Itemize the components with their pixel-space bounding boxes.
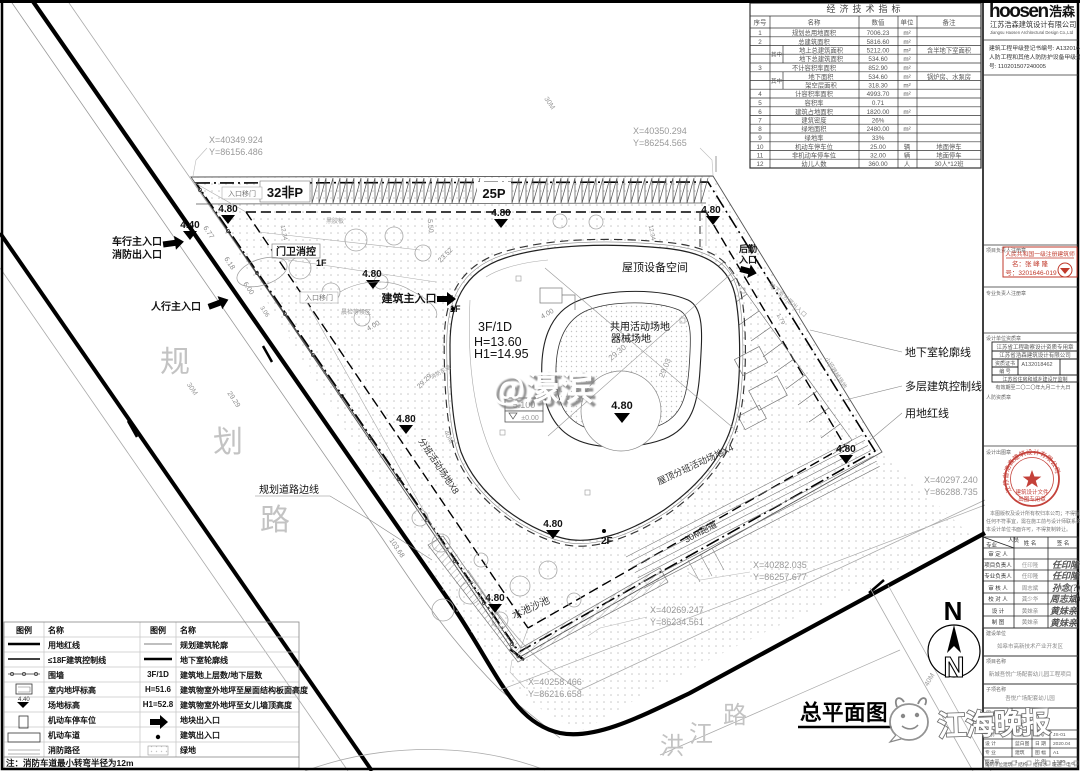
svg-text:含半地下室面积: 含半地下室面积 (927, 46, 972, 55)
svg-text:地面停车: 地面停车 (936, 151, 961, 160)
svg-text:入口: 入口 (738, 255, 757, 265)
svg-text:X=40349.924: X=40349.924 (209, 135, 263, 145)
svg-text:2480.00: 2480.00 (867, 126, 890, 133)
svg-text:318.30: 318.30 (868, 83, 888, 90)
svg-text:规: 规 (160, 346, 190, 379)
svg-text:1F: 1F (316, 258, 327, 268)
svg-text:计容积率面积: 计容积率面积 (795, 89, 833, 98)
svg-text:534.60: 534.60 (868, 74, 888, 81)
svg-text:如皋市高新技术产业开发区: 如皋市高新技术产业开发区 (997, 642, 1064, 650)
svg-text:4.80: 4.80 (543, 519, 563, 530)
svg-text:号：3201646-019: 号：3201646-019 (1005, 269, 1057, 277)
svg-text:11: 11 (757, 153, 764, 160)
svg-text:Y=86254.565: Y=86254.565 (633, 138, 687, 148)
svg-text:32.00: 32.00 (870, 153, 886, 160)
svg-text:10: 10 (756, 144, 764, 151)
svg-text:任印隆: 任印隆 (1022, 561, 1039, 569)
svg-text:地下面积: 地下面积 (808, 72, 834, 81)
svg-text:黄妹亲: 黄妹亲 (1050, 618, 1078, 628)
svg-text:地上总建筑面积: 地上总建筑面积 (799, 46, 844, 55)
svg-text:±0.00: ±0.00 (521, 415, 539, 422)
svg-text:4.80: 4.80 (485, 593, 505, 604)
svg-text:≤18F建筑控制线: ≤18F建筑控制线 (48, 655, 106, 665)
svg-text:建筑密度: 建筑密度 (801, 116, 827, 125)
svg-text:32非P: 32非P (267, 185, 303, 200)
svg-text:4.80: 4.80 (362, 269, 382, 280)
svg-text:建筑设计文件: 建筑设计文件 (1015, 488, 1049, 496)
svg-text:人: 人 (904, 160, 911, 168)
svg-text:出图专用章: 出图专用章 (1018, 495, 1046, 503)
svg-text:建筑出入口: 建筑出入口 (179, 730, 220, 740)
svg-text:用地红线: 用地红线 (47, 640, 80, 650)
svg-text:电气: 电气 (1066, 761, 1076, 768)
svg-text:N: N (944, 652, 965, 684)
svg-text:设计出图章: 设计出图章 (986, 449, 1011, 456)
svg-text:设 计: 设 计 (992, 607, 1005, 615)
svg-text:2F: 2F (601, 536, 613, 547)
svg-text:人行主入口: 人行主入口 (151, 300, 201, 313)
svg-text:江苏省工程勘察设计资质专用章: 江苏省工程勘察设计资质专用章 (996, 343, 1074, 351)
svg-text:H=51.6: H=51.6 (145, 685, 172, 694)
svg-text:总建筑面积: 总建筑面积 (798, 37, 830, 46)
svg-text:建筑主入口: 建筑主入口 (382, 291, 437, 305)
svg-text:4.40: 4.40 (180, 220, 200, 231)
svg-text:3F/1D: 3F/1D (147, 670, 169, 679)
svg-text:周志斌: 周志斌 (1022, 584, 1039, 592)
svg-text:4.80: 4.80 (836, 444, 856, 455)
svg-text:号: 110201507240005: 号: 110201507240005 (989, 63, 1046, 70)
svg-text:X=40258.466: X=40258.466 (528, 677, 582, 687)
svg-text:晨检等候区: 晨检等候区 (341, 308, 371, 316)
svg-text:用地红线: 用地红线 (905, 406, 949, 420)
svg-text:地块出入口: 地块出入口 (180, 715, 220, 725)
svg-text:4.80: 4.80 (611, 400, 632, 412)
svg-text:经济技术指标: 经济技术指标 (826, 3, 904, 14)
svg-text:多层建筑控制线: 多层建筑控制线 (905, 379, 982, 393)
svg-text:Jiangsu Haosen Architectural D: Jiangsu Haosen Architectural Design Co.,… (990, 30, 1074, 35)
svg-text:场地标高: 场地标高 (48, 700, 80, 710)
svg-text:9: 9 (758, 135, 762, 142)
svg-text:建设单位: 建设单位 (986, 630, 1006, 637)
svg-text:资质证书: 资质证书 (995, 360, 1015, 367)
svg-text:7006.23: 7006.23 (867, 30, 890, 37)
svg-text:任印隆: 任印隆 (1052, 560, 1080, 570)
svg-text:m²: m² (903, 83, 910, 90)
svg-text:人民共和国一级注册建筑师: 人民共和国一级注册建筑师 (1005, 250, 1075, 258)
svg-text:车行主入口: 车行主入口 (112, 235, 162, 248)
svg-text:规划建筑轮廓: 规划建筑轮廓 (180, 640, 228, 650)
svg-text:子项名称: 子项名称 (986, 686, 1006, 693)
svg-text:序号: 序号 (754, 18, 768, 27)
svg-text:给排水: 给排水 (1033, 761, 1048, 768)
svg-text:日 期: 日 期 (1035, 741, 1046, 747)
svg-text:其中: 其中 (771, 51, 782, 59)
svg-text:25P: 25P (482, 186, 505, 201)
svg-text:4: 4 (758, 91, 762, 98)
svg-text:结构: 结构 (1018, 761, 1028, 768)
svg-text:m²: m² (903, 109, 910, 116)
svg-text:校 对 人: 校 对 人 (988, 595, 1008, 603)
svg-text:建筑: 建筑 (1015, 749, 1025, 756)
svg-text:专业负责人: 专业负责人 (984, 572, 1012, 580)
svg-text:不计容积率面积: 不计容积率面积 (792, 63, 837, 72)
svg-text:数值: 数值 (872, 18, 886, 27)
svg-text:A132018462: A132018462 (1021, 362, 1052, 368)
svg-text:姓 名: 姓 名 (1024, 539, 1037, 547)
svg-text:H1=14.95: H1=14.95 (474, 347, 529, 361)
svg-text:绿地面积: 绿地面积 (801, 124, 827, 133)
svg-text:江苏浩森建筑设计有限公司: 江苏浩森建筑设计有限公司 (990, 20, 1076, 29)
svg-text:项目名称: 项目名称 (986, 658, 1006, 665)
svg-text:4.80: 4.80 (491, 208, 511, 219)
svg-text:幼儿人数: 幼儿人数 (801, 159, 827, 168)
svg-text:JS-01: JS-01 (1053, 732, 1066, 738)
svg-text:X=40269.247: X=40269.247 (650, 605, 704, 615)
svg-text:入口移门: 入口移门 (228, 189, 256, 198)
svg-text:X=40350.294: X=40350.294 (633, 126, 687, 136)
svg-text:m²: m² (903, 48, 910, 55)
svg-text:m²: m² (903, 65, 910, 72)
svg-text:5816.60: 5816.60 (867, 39, 890, 46)
svg-text:建筑物室外地坪至女儿墙顶高度: 建筑物室外地坪至女儿墙顶高度 (179, 700, 293, 710)
svg-text:制 图: 制 图 (992, 618, 1005, 626)
svg-text:人防工程和其他人防防护设备甲级登记书编: 人防工程和其他人防防护设备甲级登记书编 (989, 53, 1080, 61)
svg-text:审 定 人: 审 定 人 (988, 550, 1008, 558)
svg-text:30人*12班: 30人*12班 (934, 159, 964, 168)
svg-text:任何不符事宜，需在施工前与设计师联系确认，本图设计内容未经: 任何不符事宜，需在施工前与设计师联系确认，本图设计内容未经 (986, 518, 1080, 525)
svg-text:专业负责人注册章: 专业负责人注册章 (986, 290, 1026, 297)
svg-text:534.60: 534.60 (868, 56, 888, 63)
svg-text:单位: 单位 (901, 18, 915, 27)
svg-text:江苏省住房和城乡建设厅监制: 江苏省住房和城乡建设厅监制 (1002, 376, 1067, 383)
svg-text:1: 1 (758, 30, 762, 37)
svg-text:本图版权及设计所有权归本公司；不得擅自修改用于施工；如有: 本图版权及设计所有权归本公司；不得擅自修改用于施工；如有 (990, 510, 1080, 517)
svg-text:地下总建筑面积: 地下总建筑面积 (799, 54, 844, 63)
svg-text:屋顶设备空间: 屋顶设备空间 (622, 260, 688, 274)
svg-text:编 号: 编 号 (999, 368, 1010, 375)
svg-text:有效期至二〇二〇年九月二十九日: 有效期至二〇二〇年九月二十九日 (995, 384, 1070, 391)
svg-text:33%: 33% (872, 135, 885, 142)
svg-text:m²: m² (903, 126, 910, 133)
svg-text:4.80: 4.80 (701, 205, 721, 216)
svg-text:蓝白图: 蓝白图 (1015, 740, 1030, 747)
svg-text:编制单位: 编制单位 (985, 761, 1003, 768)
svg-text:名称: 名称 (48, 625, 64, 635)
svg-text:0.71: 0.71 (872, 100, 885, 107)
svg-text:hoosen: hoosen (989, 1, 1048, 22)
svg-text:m²: m² (903, 74, 910, 81)
svg-text:H1=52.8: H1=52.8 (143, 700, 174, 709)
svg-text:围墙: 围墙 (48, 670, 64, 680)
svg-text:5212.00: 5212.00 (867, 48, 890, 55)
svg-text:项目负责人: 项目负责人 (984, 561, 1012, 569)
svg-text:路: 路 (723, 702, 747, 729)
svg-text:7: 7 (758, 118, 762, 125)
svg-text:3: 3 (758, 65, 762, 72)
svg-text:5: 5 (758, 100, 762, 107)
svg-text:建筑占地面积: 建筑占地面积 (795, 107, 833, 116)
svg-text:名称: 名称 (808, 18, 822, 27)
svg-text:机动车停车位: 机动车停车位 (48, 715, 96, 725)
svg-text:m²: m² (903, 39, 910, 46)
svg-text:m²: m² (903, 30, 910, 37)
svg-text:注：消防车道最小转弯半径为12m: 注：消防车道最小转弯半径为12m (6, 758, 134, 768)
svg-text:辆: 辆 (904, 142, 910, 151)
svg-text:人员: 人员 (1008, 537, 1020, 544)
svg-text:图例: 图例 (16, 625, 32, 635)
svg-text:江: 江 (689, 721, 713, 748)
svg-text:任印隆: 任印隆 (1022, 572, 1039, 580)
svg-text:本设计单位书面许可，不得复制转让。: 本设计单位书面许可，不得复制转让。 (986, 526, 1071, 533)
svg-text:机动车停车位: 机动车停车位 (795, 142, 833, 151)
svg-text:Y=86216.658: Y=86216.658 (528, 689, 582, 699)
svg-text:设计单位资质章: 设计单位资质章 (986, 335, 1021, 342)
svg-text:室内地坪标高: 室内地坪标高 (48, 685, 96, 695)
svg-text:Y=86257.677: Y=86257.677 (753, 572, 807, 582)
svg-text:后勤: 后勤 (739, 243, 757, 254)
svg-text:洪: 洪 (660, 733, 684, 760)
svg-text:黄妹亲: 黄妹亲 (1050, 606, 1078, 616)
svg-text:孙念(?): 孙念(?) (1052, 583, 1080, 593)
svg-text:26%: 26% (872, 118, 885, 125)
svg-text:A1: A1 (1053, 750, 1059, 756)
svg-text:图 幅: 图 幅 (1035, 749, 1046, 756)
svg-text:黄妹亲: 黄妹亲 (1022, 618, 1039, 626)
svg-text:新城吾悦广场配套幼儿园工程项目: 新城吾悦广场配套幼儿园工程项目 (989, 670, 1072, 678)
svg-text:2020.04: 2020.04 (1053, 741, 1071, 747)
svg-text:周志斌+: 周志斌+ (1049, 594, 1080, 604)
svg-text:地下室轮廓线: 地下室轮廓线 (905, 345, 971, 359)
svg-text:任印隆: 任印隆 (1052, 571, 1080, 581)
svg-text:地面停车: 地面停车 (936, 142, 961, 151)
svg-text:建筑: 建筑 (1003, 761, 1013, 768)
svg-text:852.90: 852.90 (868, 65, 888, 72)
svg-text:共用活动场地: 共用活动场地 (610, 320, 670, 333)
svg-text:2: 2 (758, 39, 762, 46)
svg-text:签 名: 签 名 (1057, 539, 1070, 547)
svg-text:规划总用地面积: 规划总用地面积 (792, 28, 837, 37)
svg-text:黄妹亲: 黄妹亲 (1022, 607, 1039, 615)
svg-text:江海晚报: 江海晚报 (937, 706, 1051, 743)
svg-text:名称: 名称 (180, 625, 196, 635)
svg-text:路: 路 (260, 504, 290, 537)
svg-text:其中: 其中 (771, 77, 782, 85)
svg-text:名：张 峰 隆: 名：张 峰 隆 (1012, 259, 1049, 268)
svg-text:4.40: 4.40 (18, 697, 30, 703)
svg-text:划: 划 (213, 426, 243, 459)
svg-text:Y=86156.486: Y=86156.486 (209, 147, 263, 157)
svg-text:器械场地: 器械场地 (611, 332, 651, 345)
svg-text:X=40297.240: X=40297.240 (924, 475, 978, 485)
svg-text:12: 12 (756, 161, 764, 168)
svg-text:专业: 专业 (986, 541, 998, 549)
svg-text:容积率: 容积率 (805, 98, 824, 107)
svg-text:360.00: 360.00 (868, 161, 888, 168)
svg-text:机动车道: 机动车道 (48, 730, 80, 740)
svg-text:N: N (944, 596, 963, 626)
svg-text:备注: 备注 (943, 18, 957, 27)
svg-text:江苏省浩森建筑设计有限公司: 江苏省浩森建筑设计有限公司 (999, 351, 1071, 359)
svg-text:绿地率: 绿地率 (805, 133, 824, 142)
svg-text:专 业: 专 业 (985, 749, 996, 756)
svg-text:X=40282.035: X=40282.035 (753, 560, 807, 570)
svg-text:1820.00: 1820.00 (867, 109, 890, 116)
svg-text:6: 6 (758, 109, 762, 116)
svg-text:5.50: 5.50 (426, 219, 434, 233)
svg-text:龚少华: 龚少华 (1022, 595, 1039, 603)
svg-text:架空层面积: 架空层面积 (805, 81, 837, 90)
svg-text:总平面图: 总平面图 (800, 700, 888, 725)
svg-text:人防资质章: 人防资质章 (986, 394, 1011, 401)
svg-text:规划道路边线: 规划道路边线 (259, 483, 319, 496)
svg-text:Y=86288.735: Y=86288.735 (924, 487, 978, 497)
svg-text:锅炉房、水泵房: 锅炉房、水泵房 (927, 72, 971, 81)
svg-text:建筑地上层数/地下层数: 建筑地上层数/地下层数 (179, 670, 263, 680)
svg-text:建筑物室外地坪至屋面结构板面高度: 建筑物室外地坪至屋面结构板面高度 (179, 685, 309, 695)
svg-text:辆: 辆 (904, 151, 910, 160)
svg-text:非机动车停车位: 非机动车停车位 (792, 151, 837, 160)
svg-text:m²: m² (903, 91, 910, 98)
svg-text:门卫消控: 门卫消控 (276, 245, 316, 258)
svg-text:m²: m² (903, 56, 910, 63)
svg-text:8: 8 (758, 126, 762, 133)
svg-text:@濠滨: @濠滨 (491, 368, 593, 408)
svg-text:图例: 图例 (150, 625, 166, 635)
svg-text:4.80: 4.80 (218, 204, 238, 215)
svg-text:黑胶板: 黑胶板 (326, 217, 344, 225)
svg-text:绿地: 绿地 (180, 745, 196, 755)
svg-text:浩森: 浩森 (1049, 4, 1076, 19)
svg-text:Y=86234.561: Y=86234.561 (650, 617, 704, 627)
svg-text:3F/1D: 3F/1D (478, 320, 512, 334)
svg-text:暖通: 暖通 (1052, 761, 1062, 768)
svg-text:建筑工程甲级登记书编号: A132016462: 建筑工程甲级登记书编号: A132016462 (989, 44, 1080, 52)
svg-text:地下室轮廓线: 地下室轮廓线 (180, 655, 228, 665)
svg-text:25.00: 25.00 (870, 144, 886, 151)
svg-text:消防路径: 消防路径 (48, 745, 80, 755)
svg-text:入口移门: 入口移门 (305, 293, 333, 302)
svg-text:4993.70: 4993.70 (867, 91, 890, 98)
svg-text:吾悦广场配套幼儿园: 吾悦广场配套幼儿园 (1005, 694, 1055, 702)
svg-text:消防出入口: 消防出入口 (112, 248, 162, 261)
svg-text:4.80: 4.80 (396, 414, 416, 425)
svg-text:审 核 人: 审 核 人 (988, 584, 1008, 592)
